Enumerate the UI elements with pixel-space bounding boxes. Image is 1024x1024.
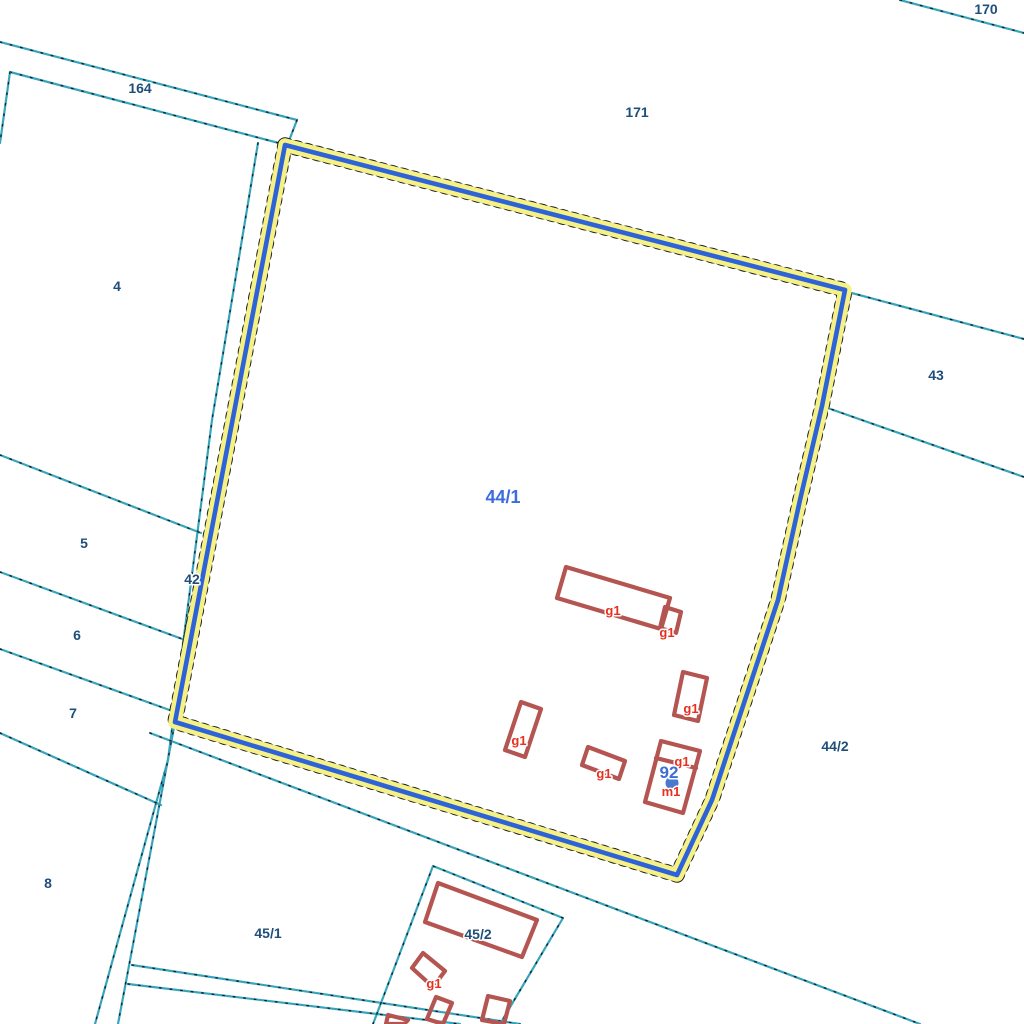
parcel-boundary-road-branch-upper <box>132 965 520 1024</box>
cadastral-map-canvas[interactable]: 1701641714435426744/2845/145/2g1g1g1g1g1… <box>0 0 1024 1024</box>
parcel-label-43: 43 <box>928 367 944 383</box>
parcel-label-6: 6 <box>73 627 81 643</box>
parcel-boundary-parcel-45-2-outline <box>373 866 563 1024</box>
building-label-g1: g1 <box>511 733 526 748</box>
parcel-boundary-road-42-right-edge-lower <box>118 722 175 1024</box>
building-label-g1: g1 <box>683 701 698 716</box>
parcel-label-164: 164 <box>128 80 152 96</box>
selected-parcel-outline[interactable] <box>175 145 845 875</box>
parcel-label-171: 171 <box>625 104 649 120</box>
building-footprint-b-45-2-large[interactable] <box>425 883 537 957</box>
parcel-boundary-dots-parcel-45-2-outline <box>373 866 563 1024</box>
parcel-label-8: 8 <box>44 875 52 891</box>
parcel-label-45-1: 45/1 <box>254 925 281 941</box>
parcel-label-42: 42 <box>184 571 200 587</box>
building-label-g1: g1 <box>659 625 674 640</box>
parcel-label-7: 7 <box>69 705 77 721</box>
selected-parcel-label: 44/1 <box>485 487 520 507</box>
parcel-boundary-divider-6-7 <box>0 649 175 712</box>
building-label-m1: m1 <box>662 784 681 799</box>
address-number-label: 92 <box>660 763 679 782</box>
selected-parcel-edge-dots <box>175 145 845 875</box>
selected-parcel-highlight-halo <box>175 145 845 875</box>
building-footprint-b-45-2-s1[interactable] <box>427 997 452 1024</box>
cadastral-map-viewport[interactable]: 1701641714435426744/2845/145/2g1g1g1g1g1… <box>0 0 1024 1024</box>
building-footprint-b-g1-long[interactable] <box>557 567 670 629</box>
parcel-label-44-2: 44/2 <box>821 738 848 754</box>
building-footprint-b-g1-narrow[interactable] <box>505 702 541 757</box>
parcel-boundary-divider-5-6 <box>0 572 185 640</box>
parcel-label-4: 4 <box>113 278 121 294</box>
parcel-boundary-dots-boundary-43-bottom <box>822 406 1024 477</box>
parcel-label-45-2: 45/2 <box>464 926 491 942</box>
building-label-g1: g1 <box>605 603 620 618</box>
parcel-label-5: 5 <box>80 535 88 551</box>
parcel-boundary-boundary-43-top <box>848 292 1024 339</box>
building-label-g1: g1 <box>426 976 441 991</box>
building-label-g1: g1 <box>596 766 611 781</box>
parcel-boundary-road-42-left-edge <box>95 143 258 1024</box>
parcel-boundary-dots-road-42-left-edge <box>95 143 258 1024</box>
parcel-label-170: 170 <box>974 1 998 17</box>
